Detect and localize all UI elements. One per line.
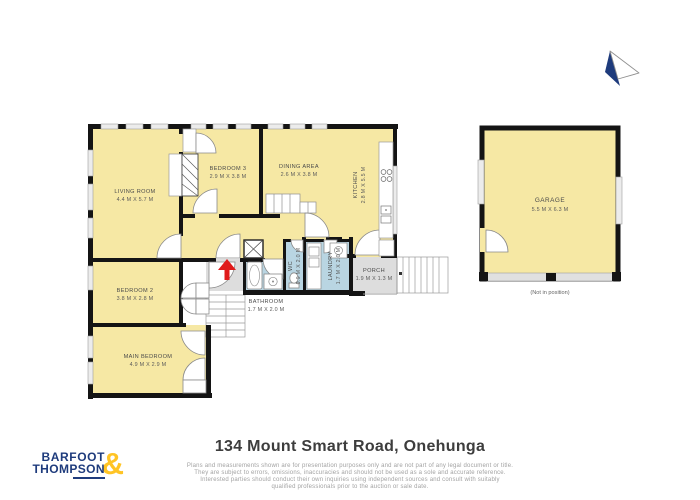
kitchen-dims: 2.8 M X 5.5 M [361,166,367,203]
logo-tagline-rule [73,477,105,479]
bedroom2-label: BEDROOM 2 [117,288,154,294]
bathroom-label: BATHROOM [249,299,284,305]
dining-dims: 2.6 M X 3.8 M [281,172,318,178]
fireplace [169,154,198,196]
floor-plan-drawing: LIVING ROOM 4.4 M X 5.7 M BEDROOM 3 2.9 … [0,0,700,500]
bedroom2-dims: 3.8 M X 2.8 M [117,296,154,302]
bedroom3-dims: 2.9 M X 3.8 M [210,174,247,180]
kitchen-label: KITCHEN [353,171,359,198]
garage-dims: 5.5 M X 6.3 M [532,207,569,213]
wc-label: WC [288,261,294,271]
living-room-dims: 4.4 M X 5.7 M [117,197,154,203]
hall-cupboard [183,129,196,152]
laundry-label: LAUNDRY [328,251,334,280]
logo-wordmark: BARFOOT THOMPSON [26,452,124,475]
living-room-label: LIVING ROOM [114,189,155,195]
entry-stairs [206,295,245,337]
bathroom-dims: 1.7 M X 2.0 M [248,307,285,313]
north-arrow-icon [605,51,639,86]
dining-label: DINING AREA [279,164,319,170]
logo-line-thompson: THOMPSON [26,463,105,475]
laundry-dims: 1.7 M X 2.0 M [336,247,342,284]
garage-note: (Not in position) [530,290,569,296]
porch-label: PORCH [363,268,385,274]
garage-label: GARAGE [535,197,565,204]
bedroom3-label: BEDROOM 3 [210,166,247,172]
main-bedroom-dims: 4.9 M X 2.9 M [130,362,167,368]
garage-structure [478,128,622,281]
barfoot-thompson-logo: & BARFOOT THOMPSON [26,452,124,479]
cupboard-x-box [244,240,263,258]
porch-stairs [397,257,448,293]
main-bedroom-label: MAIN BEDROOM [124,354,173,360]
porch-dims: 1.9 M X 1.3 M [356,276,393,282]
floor-plan-page: LIVING ROOM 4.4 M X 5.7 M BEDROOM 3 2.9 … [0,0,700,500]
wc-dims: 0.9 M X 2.0 M [296,247,302,284]
disclaimer-line-4: qualified professionals prior to the auc… [0,484,700,491]
